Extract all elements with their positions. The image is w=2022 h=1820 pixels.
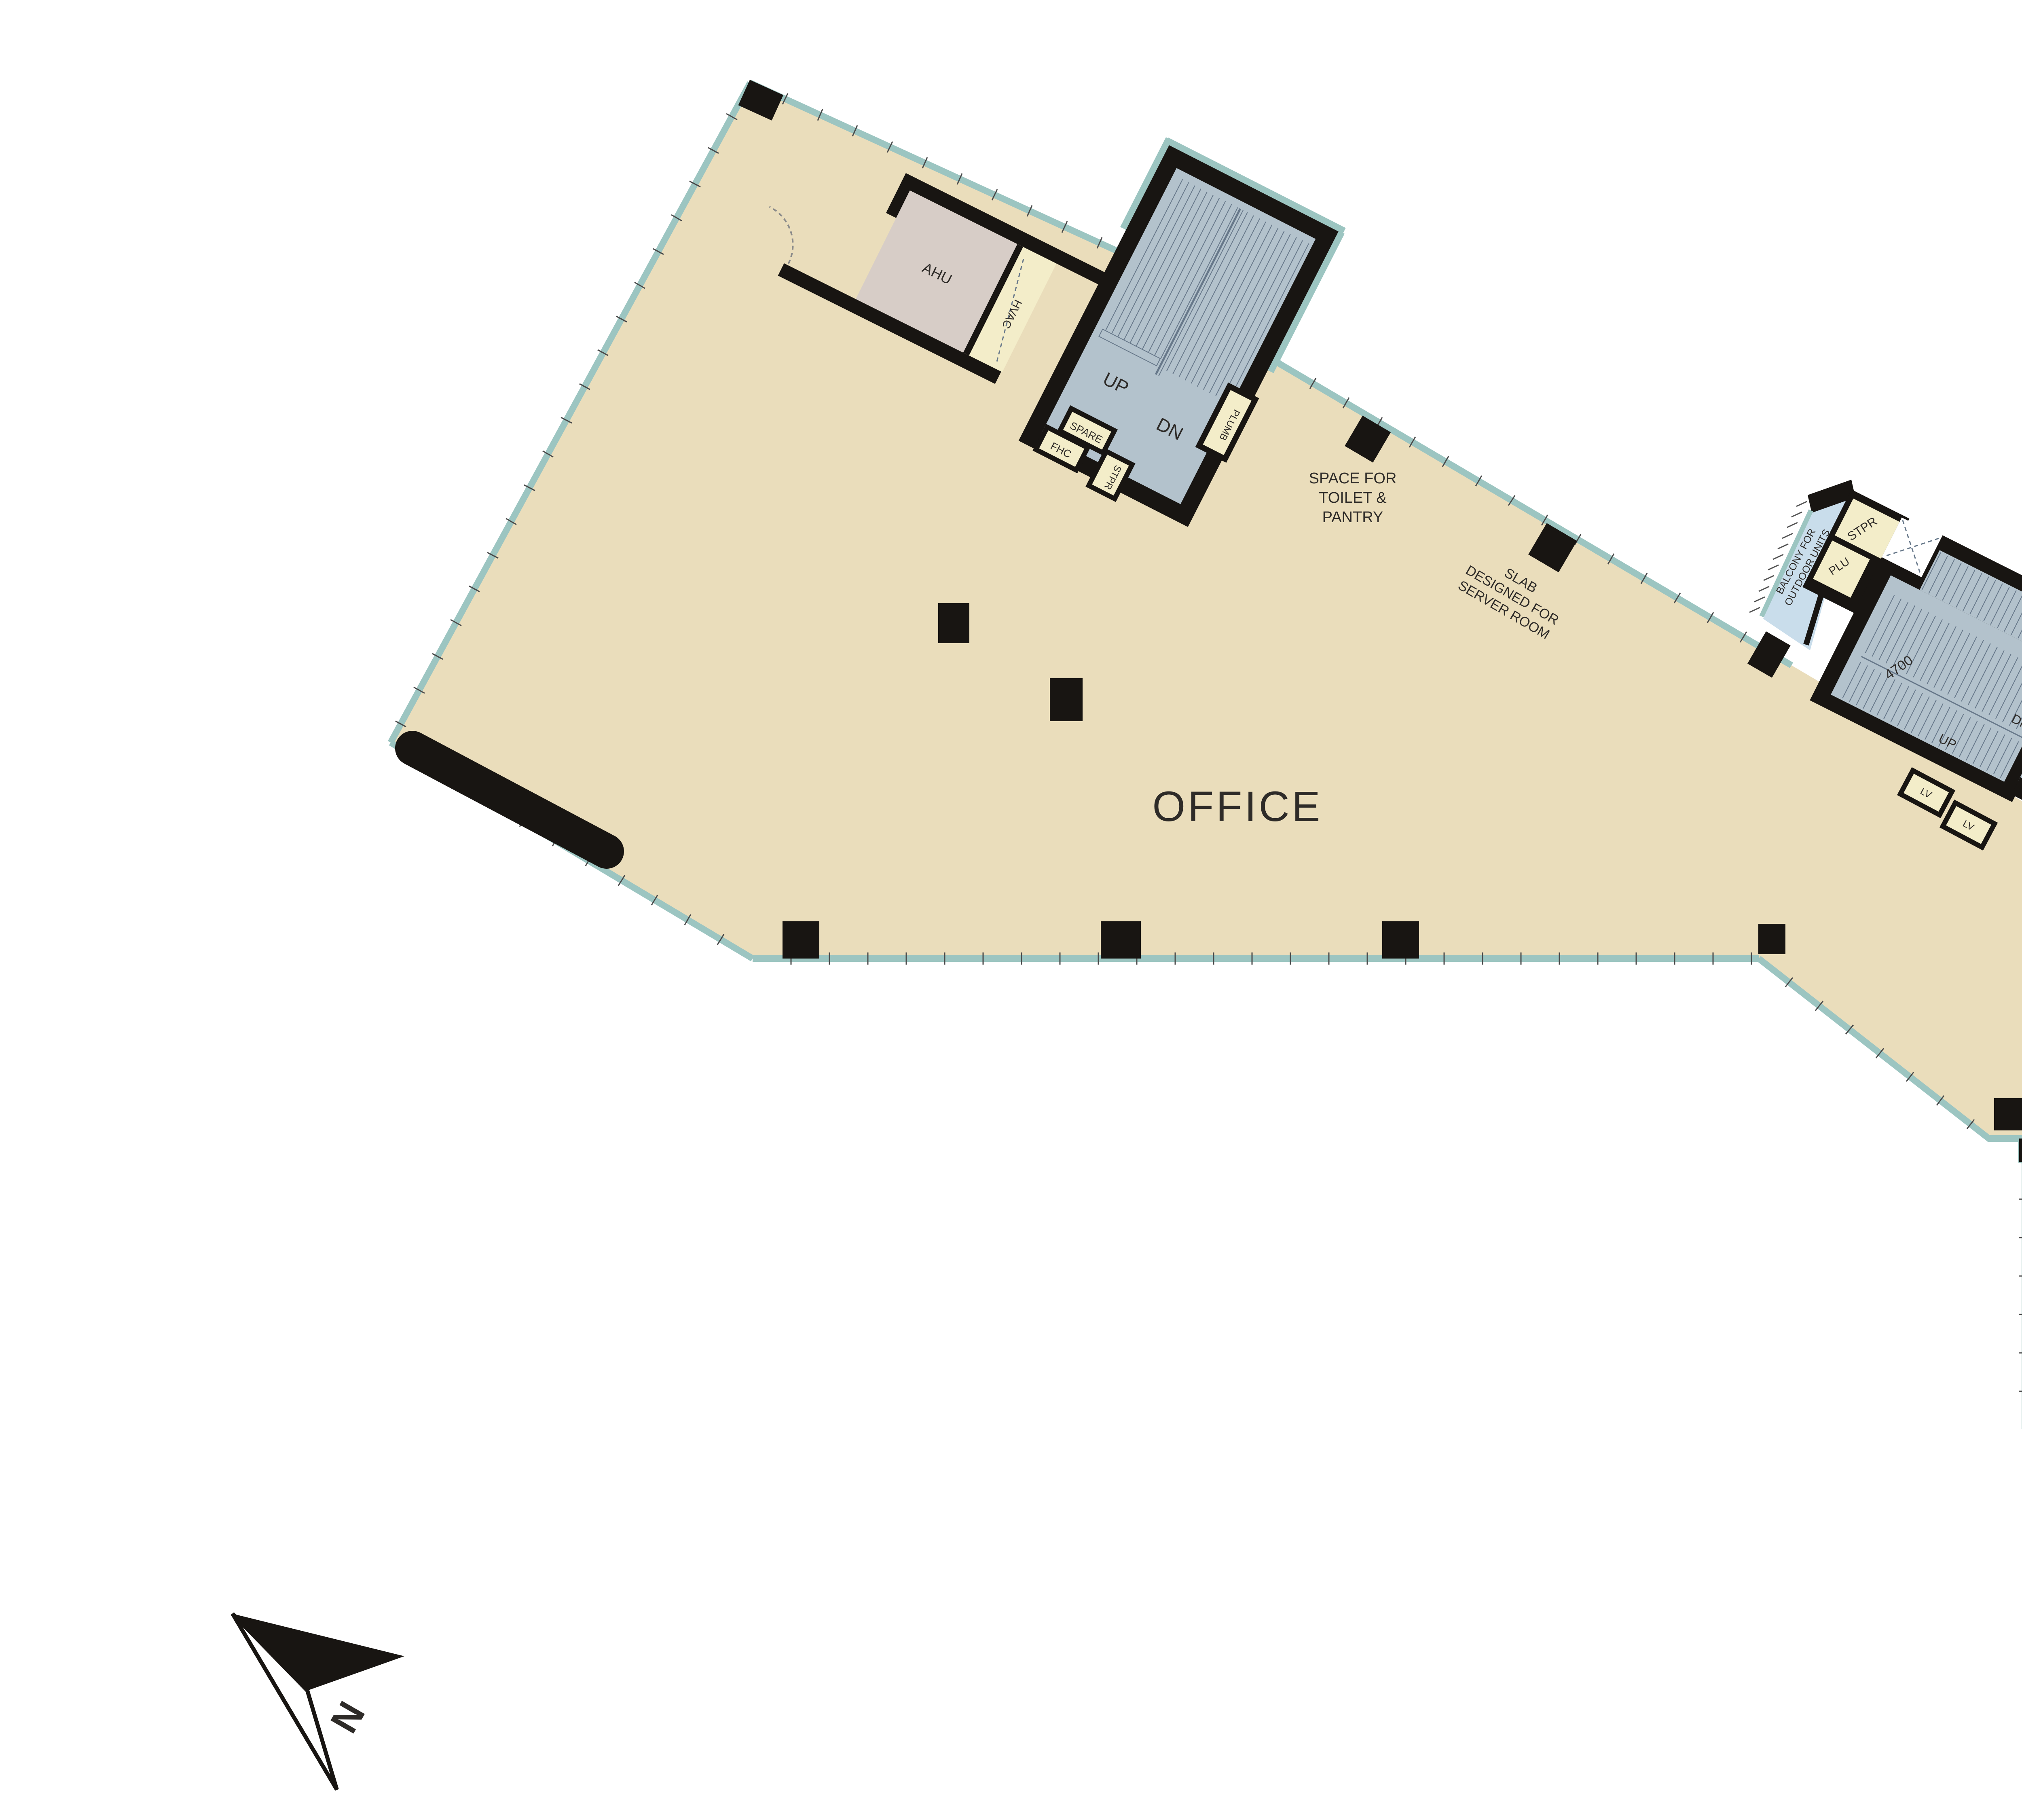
svg-text:OFFICE: OFFICE [1153, 783, 1323, 830]
